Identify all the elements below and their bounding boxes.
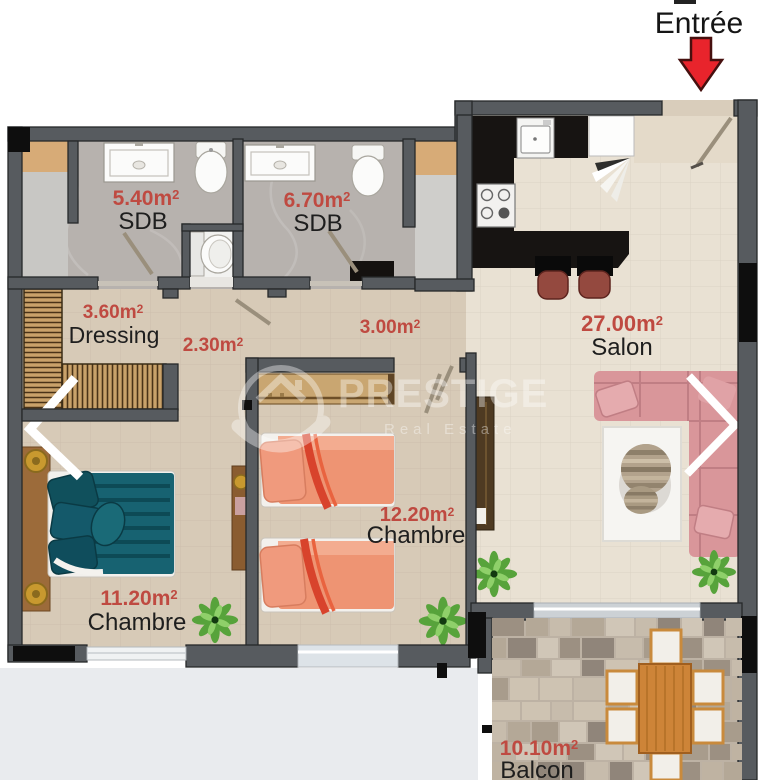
svg-text:Entrée: Entrée: [655, 7, 743, 40]
svg-text:PRESTIGE: PRESTIGE: [338, 372, 548, 416]
svg-text:SDB: SDB: [118, 208, 167, 235]
svg-text:Dressing: Dressing: [69, 322, 160, 348]
svg-text:Real Estate: Real Estate: [384, 421, 517, 438]
svg-text:2.30m2: 2.30m2: [183, 335, 244, 356]
svg-text:11.20m2: 11.20m2: [100, 587, 177, 610]
svg-text:Balcon: Balcon: [500, 757, 573, 780]
svg-text:SDB: SDB: [293, 210, 342, 237]
svg-text:3.00m2: 3.00m2: [360, 317, 421, 338]
svg-text:Salon: Salon: [591, 334, 652, 361]
svg-text:3.60m2: 3.60m2: [83, 302, 144, 323]
svg-text:Chambre: Chambre: [88, 609, 187, 636]
svg-text:6.70m2: 6.70m2: [284, 189, 351, 212]
svg-text:Chambre: Chambre: [367, 522, 466, 549]
svg-text:27.00m2: 27.00m2: [581, 311, 663, 336]
svg-text:5.40m2: 5.40m2: [113, 187, 180, 210]
